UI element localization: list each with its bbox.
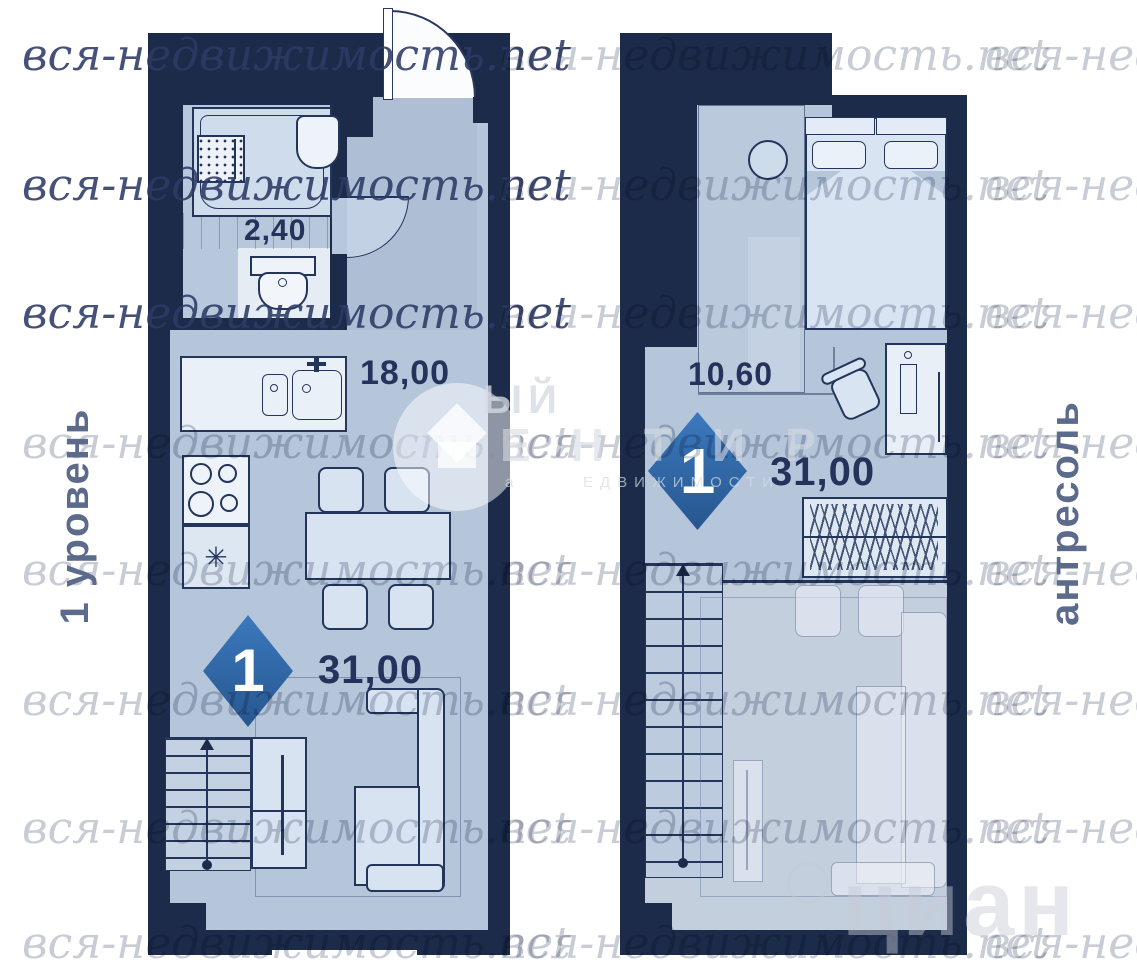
pillow-left bbox=[812, 141, 866, 169]
ghost-cabinet bbox=[733, 760, 763, 882]
floorplan-image: ✳ 2,40 18,00 1 31,00 bbox=[0, 0, 1137, 960]
zone-line-h bbox=[698, 393, 833, 395]
desk-edge bbox=[938, 372, 940, 442]
monitor-icon bbox=[900, 364, 917, 414]
ghost-chair-2 bbox=[858, 585, 904, 637]
agency-logo-cube-base bbox=[438, 442, 476, 468]
agency-watermark-top: ЫЙ bbox=[483, 378, 563, 423]
mezzanine-stairs-arrow-dot bbox=[678, 858, 688, 868]
headboard-left bbox=[805, 117, 875, 135]
blanket-fold-right bbox=[911, 171, 945, 195]
ghost-sofa-backrest bbox=[901, 612, 947, 888]
blanket-fold-left bbox=[807, 171, 841, 195]
ghost-cabinet-line bbox=[746, 770, 748, 870]
void-railing bbox=[722, 580, 947, 583]
agency-watermark-small: ЕДВИЖИМОСТИ bbox=[583, 474, 780, 491]
area-label-mezzanine-room: 10,60 bbox=[688, 356, 773, 393]
agency-watermark-bottom: ЕНТИР bbox=[500, 418, 856, 472]
mezzanine-bottom-step bbox=[620, 903, 672, 955]
cian-logo-ring bbox=[787, 862, 829, 904]
mezzanine-plan: 10,60 1 31,00 bbox=[0, 0, 1137, 960]
mezzanine-stairs-arrow-line bbox=[682, 574, 684, 864]
cian-watermark: циан bbox=[842, 852, 1078, 957]
mezzanine-stairs-arrow-head bbox=[676, 564, 690, 576]
ghost-chair-1 bbox=[795, 585, 841, 637]
agency-watermark-fragment: а bbox=[505, 474, 513, 491]
pillow-right bbox=[884, 141, 938, 169]
pouf-icon bbox=[748, 140, 788, 180]
headboard-right bbox=[876, 117, 947, 135]
side-label-level1: 1 уровень bbox=[53, 386, 97, 646]
wardrobe-rail bbox=[802, 536, 948, 538]
desk-dot bbox=[904, 351, 912, 359]
side-label-mezzanine: антресоль bbox=[1043, 383, 1087, 643]
